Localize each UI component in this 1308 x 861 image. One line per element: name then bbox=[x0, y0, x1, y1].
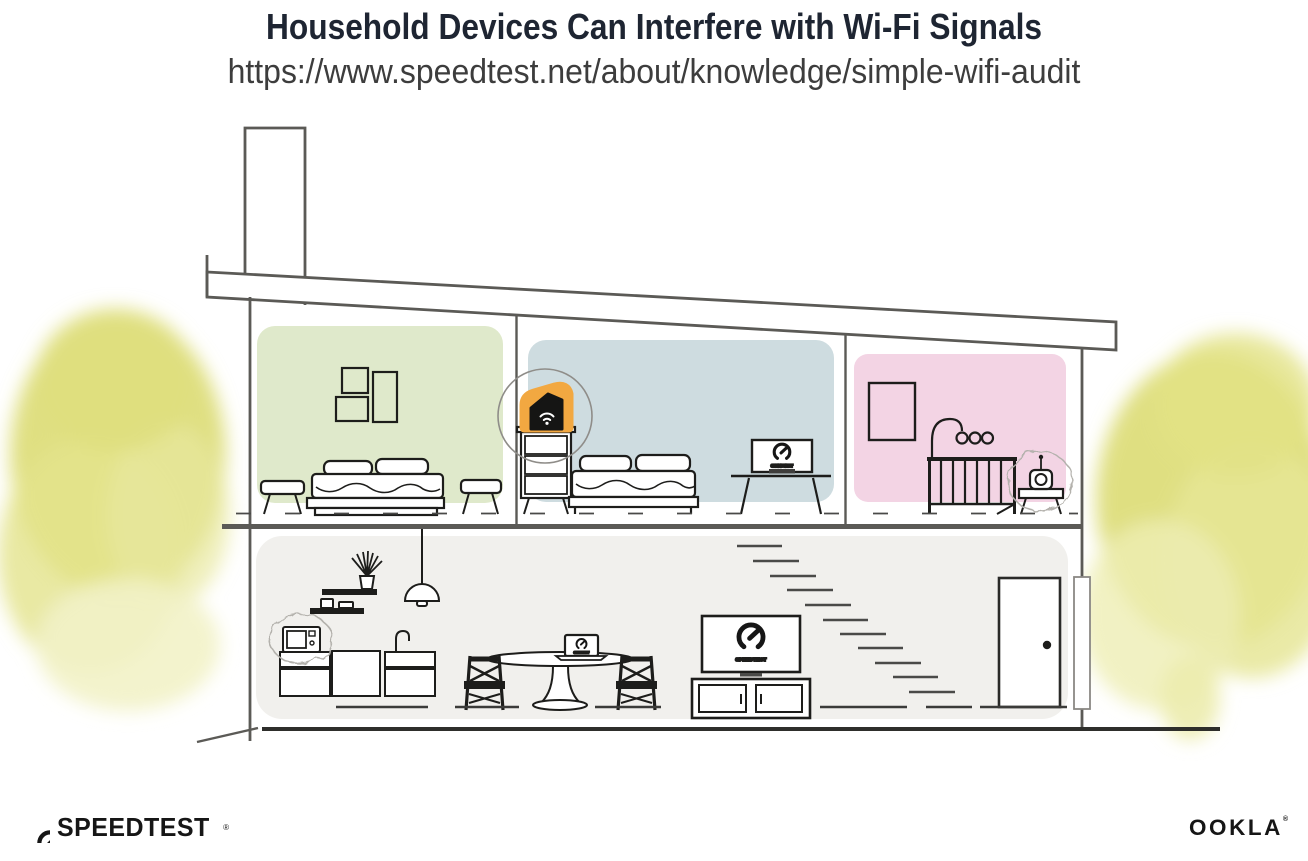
page-title: Household Devices Can Interfere with Wi-… bbox=[78, 6, 1229, 48]
house-cross-section-illustration: SPEEDTEST bbox=[0, 0, 1308, 861]
door-knob bbox=[1043, 641, 1051, 649]
source-url: https://www.speedtest.net/about/knowledg… bbox=[39, 53, 1269, 92]
media-console bbox=[692, 679, 810, 718]
downspout bbox=[1074, 577, 1090, 709]
registered-mark: ® bbox=[223, 823, 229, 832]
tv-area: SPEEDTEST bbox=[692, 616, 810, 718]
header: Household Devices Can Interfere with Wi-… bbox=[0, 6, 1308, 92]
speedtest-gauge-icon bbox=[20, 813, 50, 843]
entry-door bbox=[999, 578, 1060, 707]
dining-laptop-label: SPEEDTEST bbox=[574, 652, 590, 655]
bedroom-monitor-label: SPEEDTEST bbox=[771, 464, 794, 468]
microwave bbox=[283, 627, 320, 652]
ookla-wordmark: OOKLA bbox=[1189, 815, 1283, 840]
speedtest-wordmark: SPEEDTEST bbox=[57, 812, 210, 843]
foliage-right bbox=[1080, 333, 1308, 740]
kitchen-cabinets bbox=[280, 651, 435, 696]
laptop-on-desk: SPEEDTEST bbox=[752, 440, 812, 474]
ookla-logo: OOKLA® bbox=[1189, 815, 1288, 841]
footer: SPEEDTEST® OOKLA® bbox=[0, 812, 1308, 843]
bed bbox=[307, 459, 444, 515]
speedtest-logo: SPEEDTEST® bbox=[20, 812, 229, 843]
living-tv-label: SPEEDTEST bbox=[735, 657, 766, 663]
registered-mark: ® bbox=[1283, 816, 1288, 823]
foliage-left bbox=[0, 308, 230, 711]
